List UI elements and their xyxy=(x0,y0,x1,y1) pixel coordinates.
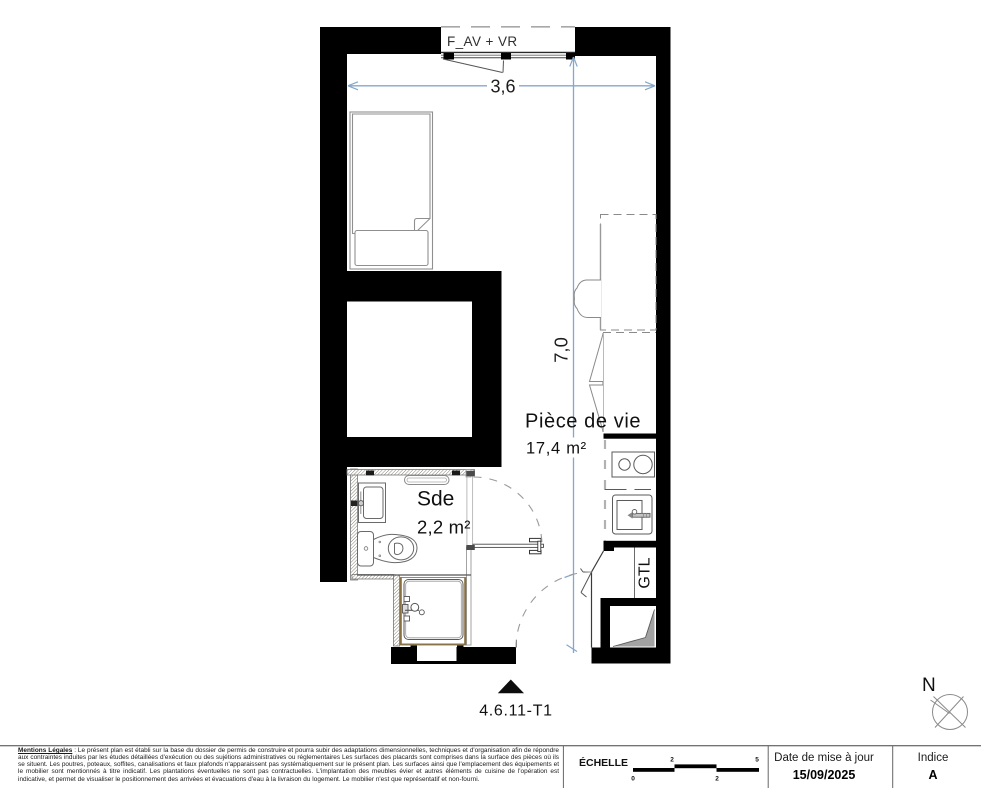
svg-text:ÉCHELLE: ÉCHELLE xyxy=(579,756,628,769)
svg-text:0: 0 xyxy=(631,776,635,783)
svg-text:7,0: 7,0 xyxy=(551,337,572,363)
svg-text:2,2 m²: 2,2 m² xyxy=(417,517,471,538)
svg-text:2: 2 xyxy=(715,776,719,783)
svg-text:A: A xyxy=(928,768,937,782)
svg-text:Indice: Indice xyxy=(918,752,949,764)
svg-text:5: 5 xyxy=(755,757,759,764)
svg-text:F_AV + VR: F_AV + VR xyxy=(447,34,518,49)
svg-text:Pièce de vie: Pièce de vie xyxy=(525,411,641,433)
svg-text:2: 2 xyxy=(670,757,674,764)
svg-text:Sde: Sde xyxy=(417,488,454,511)
svg-text:15/09/2025: 15/09/2025 xyxy=(793,768,856,782)
svg-text:3,6: 3,6 xyxy=(490,77,515,97)
svg-text:Date de mise à jour: Date de mise à jour xyxy=(774,752,874,764)
svg-text:17,4 m²: 17,4 m² xyxy=(526,440,587,458)
svg-text:N: N xyxy=(922,675,936,696)
svg-text:4.6.11-T1: 4.6.11-T1 xyxy=(479,703,553,720)
svg-text:GTL: GTL xyxy=(637,557,654,588)
